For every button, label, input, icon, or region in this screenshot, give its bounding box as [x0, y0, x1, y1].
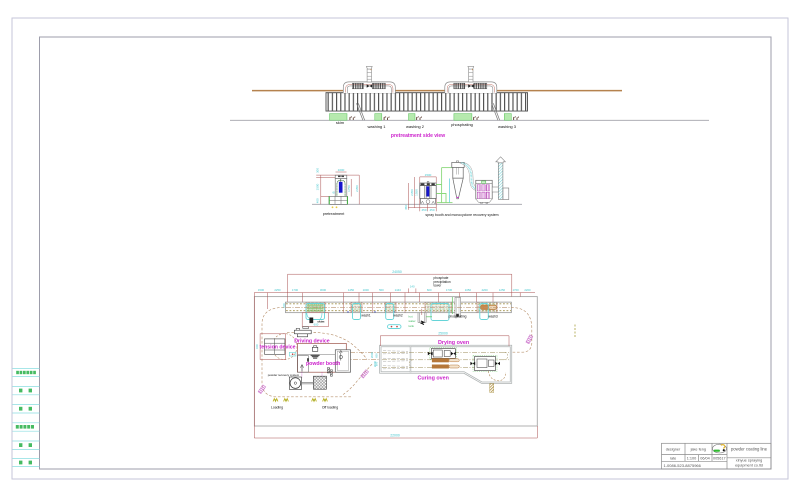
svg-text:300: 300 [316, 168, 320, 173]
svg-text:pretreatment side view: pretreatment side view [391, 133, 445, 139]
svg-text:1500: 1500 [258, 288, 265, 292]
svg-text:2000: 2000 [370, 351, 374, 358]
svg-text:tension device: tension device [260, 344, 296, 350]
svg-text:powder booth: powder booth [306, 361, 340, 367]
svg-text:1500: 1500 [316, 183, 320, 190]
svg-text:06/04: 06/04 [700, 456, 710, 460]
svg-text:rate: rate [670, 456, 677, 460]
svg-text:Off loading: Off loading [322, 406, 338, 410]
svg-text:wash3: wash3 [488, 315, 498, 319]
svg-text:powder recovery system: powder recovery system [268, 373, 300, 377]
svg-text:wash2: wash2 [393, 313, 403, 317]
svg-text:3000: 3000 [320, 288, 327, 292]
svg-text:450: 450 [421, 208, 426, 212]
svg-text:1-0086-523-8875966: 1-0086-523-8875966 [664, 463, 702, 468]
svg-text:hot: hot [409, 315, 413, 319]
svg-text:jake feng: jake feng [690, 448, 706, 452]
svg-text:600: 600 [255, 344, 259, 349]
svg-text:equipment co.ltd: equipment co.ltd [735, 464, 763, 468]
svg-text:xinyue spraying: xinyue spraying [736, 459, 762, 463]
svg-text:2350: 2350 [355, 185, 359, 192]
svg-text:washing 2: washing 2 [406, 124, 425, 129]
svg-text:washing 1: washing 1 [367, 124, 386, 129]
svg-text:1050: 1050 [465, 288, 472, 292]
svg-text:washing 3: washing 3 [498, 124, 517, 129]
svg-text:600: 600 [282, 303, 286, 308]
svg-text:24050: 24050 [392, 270, 402, 274]
svg-text:1450: 1450 [348, 288, 355, 292]
svg-text:wash1: wash1 [361, 313, 371, 317]
svg-text:140: 140 [410, 285, 415, 289]
svg-text:Curing oven: Curing oven [418, 375, 449, 381]
svg-text:2200: 2200 [524, 288, 531, 292]
svg-text:2250: 2250 [274, 288, 281, 292]
svg-text:600: 600 [427, 288, 432, 292]
svg-text:skim: skim [336, 120, 345, 125]
svg-text:pretreatment: pretreatment [323, 212, 345, 216]
svg-text:600: 600 [374, 353, 378, 358]
svg-text:Driving device: Driving device [294, 339, 330, 345]
svg-text:phosphating: phosphating [449, 315, 467, 319]
svg-text:powder coating line: powder coating line [731, 446, 768, 451]
svg-text:Loading: Loading [271, 406, 283, 410]
svg-text:tower: tower [434, 284, 443, 288]
svg-text:1443: 1443 [395, 288, 402, 292]
svg-text:1736: 1736 [446, 288, 453, 292]
svg-text:4200: 4200 [481, 288, 488, 292]
svg-text:600: 600 [374, 361, 378, 366]
svg-text:600: 600 [314, 323, 319, 327]
svg-text:005617: 005617 [713, 456, 726, 460]
svg-text:1750: 1750 [347, 185, 351, 192]
svg-text:tank: tank [409, 324, 415, 328]
svg-text:450: 450 [404, 205, 408, 210]
svg-text:1700: 1700 [512, 288, 519, 292]
svg-text:1250: 1250 [499, 288, 506, 292]
svg-text:22000: 22000 [390, 434, 400, 438]
svg-text:400: 400 [316, 198, 320, 203]
svg-text:skim: skim [317, 320, 324, 324]
svg-text:1000: 1000 [338, 168, 345, 172]
svg-text:500: 500 [379, 288, 384, 292]
svg-text:1000: 1000 [363, 288, 370, 292]
svg-text:1558: 1558 [415, 189, 419, 196]
svg-text:spray booth and monocyclone re: spray booth and monocyclone recovery sys… [425, 213, 498, 217]
svg-text:25000: 25000 [438, 332, 448, 336]
svg-text:water: water [409, 319, 416, 323]
svg-text:2350: 2350 [410, 189, 414, 196]
svg-text:1500: 1500 [425, 173, 432, 177]
svg-text:450: 450 [429, 208, 434, 212]
svg-text:phosphating: phosphating [451, 122, 473, 127]
svg-text:1700: 1700 [292, 288, 299, 292]
svg-text:1:100: 1:100 [687, 456, 697, 460]
svg-text:designer: designer [666, 448, 681, 452]
